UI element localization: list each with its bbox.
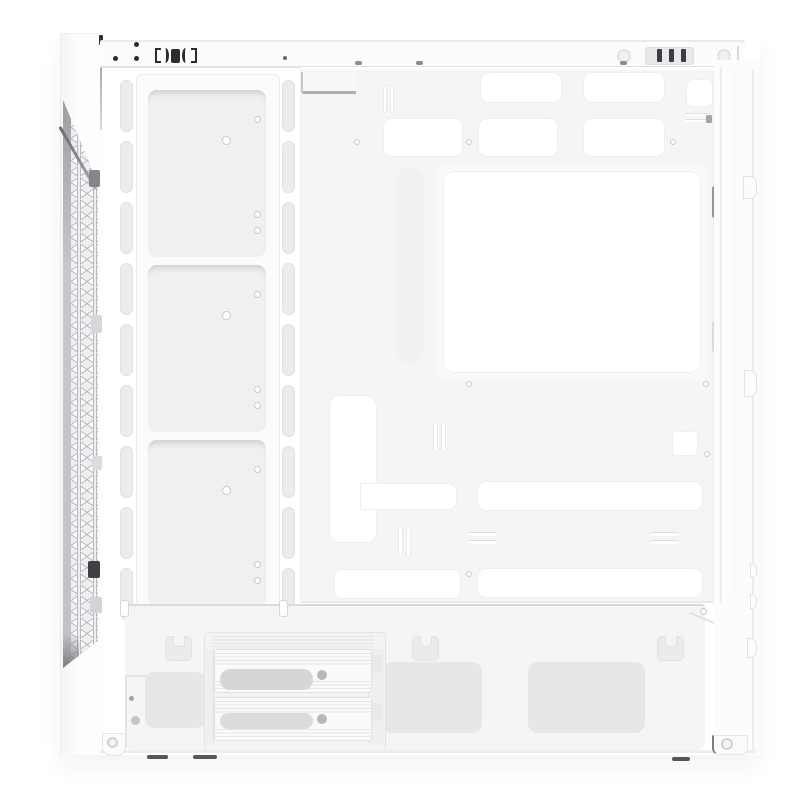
rear-tab <box>743 176 757 199</box>
fan-screw-hole <box>222 311 231 320</box>
radiator-mount-slot <box>282 141 295 193</box>
vertical-cable-cutout <box>329 395 377 543</box>
shroud-screw <box>700 608 707 615</box>
cable-grommet-cutout <box>478 118 558 157</box>
cable-grommet-cutout <box>583 118 665 157</box>
radiator-mount-slot <box>282 385 295 437</box>
front-foot-screw <box>107 737 118 748</box>
tie-down-slot <box>441 422 446 452</box>
io-port-glyph <box>163 48 169 63</box>
radiator-mount-slot <box>120 507 133 559</box>
radiator-mount-slot <box>282 263 295 315</box>
fan-screw-hole <box>254 386 261 393</box>
mesh-clip <box>92 456 102 470</box>
mesh-clip <box>88 561 100 578</box>
tray-slit-mark <box>468 540 497 544</box>
standoff-screw <box>466 139 472 145</box>
rear-tab <box>747 638 757 658</box>
cable-grommet-cutout <box>686 79 713 107</box>
shroud-pin <box>279 600 288 617</box>
mesh-left-edge <box>63 100 71 668</box>
rear-nub <box>750 563 757 578</box>
fan-screw-hole <box>254 402 261 409</box>
radiator-mount-slot <box>282 324 295 376</box>
edge-screw-dash <box>416 61 423 65</box>
pc-case-photo <box>0 0 800 800</box>
case-bottom-line <box>100 750 756 753</box>
fan-screw-hole <box>254 211 261 218</box>
tray-slit-mark <box>650 540 679 544</box>
radiator-mount-slot <box>120 263 133 315</box>
top-screw-dot <box>283 56 287 60</box>
bottom-cable-cutout <box>334 569 461 599</box>
fan-screw-hole <box>254 577 261 584</box>
io-port-glyph <box>155 48 161 63</box>
radiator-mount-slot <box>282 507 295 559</box>
standoff-screw <box>704 451 710 457</box>
tray-step-box <box>301 72 356 94</box>
drive-tray-screw <box>317 714 327 724</box>
horizontal-cable-cutout <box>477 481 703 511</box>
fan-screw-hole <box>254 561 261 568</box>
tray-slit-mark <box>468 532 497 536</box>
tie-down-slot <box>398 527 403 557</box>
io-port-glyph <box>171 49 180 63</box>
mesh-clip <box>89 170 100 187</box>
rear-nub <box>750 594 757 609</box>
drive-tray-recess <box>220 669 313 690</box>
io-port-glyph <box>191 48 197 63</box>
tie-down-slot <box>433 422 438 452</box>
mesh-clip <box>90 597 102 613</box>
radiator-mount-slot <box>120 80 133 132</box>
top-screw-dot <box>113 56 118 61</box>
horizontal-cable-cutout <box>360 483 457 510</box>
mesh-clip <box>91 315 102 333</box>
foot-shadow <box>672 757 690 761</box>
fan-screw-hole <box>254 116 261 123</box>
drive-tray-recess <box>220 713 313 729</box>
vent-grille-bar <box>681 49 686 62</box>
standoff-screw <box>354 139 360 145</box>
rear-vent-tick <box>706 115 712 123</box>
shroud-mesh-vent <box>145 672 206 728</box>
shroud-pin <box>120 600 129 617</box>
standoff-screw <box>670 139 676 145</box>
tie-down-slot <box>406 527 411 557</box>
fan-screw-hole <box>254 466 261 473</box>
fan-screw-hole <box>254 227 261 234</box>
drive-tray-screw <box>317 670 327 680</box>
shroud-screw-dot <box>131 716 140 725</box>
top-screw-dot <box>134 56 139 61</box>
top-screw-dot <box>134 42 139 47</box>
radiator-mount-slot <box>120 385 133 437</box>
io-port-glyph <box>182 48 188 63</box>
cpu-cooler-cutout <box>443 171 701 373</box>
radiator-mount-slot <box>282 446 295 498</box>
tie-down-slot <box>383 85 387 113</box>
shroud-mesh-vent <box>528 662 645 733</box>
rear-tab <box>744 370 757 397</box>
shroud-fan-bracket <box>657 636 684 661</box>
fan-screw-hole <box>222 486 231 495</box>
foot-shadow <box>147 755 168 759</box>
edge-screw-dash <box>355 61 362 65</box>
top-io-ports <box>155 47 199 64</box>
radiator-mount-slot <box>120 141 133 193</box>
shroud-mesh-vent <box>383 662 482 733</box>
tray-slit-mark <box>650 532 679 536</box>
foot-shadow <box>193 755 217 759</box>
tray-channel <box>397 167 423 363</box>
standoff-screw <box>466 381 472 387</box>
radiator-mount-slot <box>282 202 295 254</box>
cage-rim-ribs <box>212 636 374 647</box>
radiator-mount-slot <box>120 324 133 376</box>
cage-left-rail <box>206 649 214 743</box>
shroud-fan-bracket <box>165 636 192 661</box>
shroud-screw-dot <box>129 696 134 701</box>
radiator-mount-slot <box>120 446 133 498</box>
cable-grommet-cutout <box>480 72 562 103</box>
fan-mount-panel <box>148 90 266 257</box>
tie-down-slot <box>390 85 394 113</box>
edge-screw-dash <box>620 61 627 65</box>
cable-grommet-cutout <box>383 118 463 157</box>
standoff-screw <box>466 571 472 577</box>
vent-grille-bar <box>669 49 674 62</box>
fan-screw-hole <box>254 291 261 298</box>
rear-fold-line <box>734 70 735 590</box>
gpu-cable-cutout <box>672 431 698 456</box>
vent-grille-bar <box>657 49 662 62</box>
fan-mount-panel <box>148 440 266 607</box>
bottom-cable-cutout <box>477 568 703 598</box>
fan-mount-panel <box>148 265 266 432</box>
rear-inner-line <box>720 67 722 603</box>
rear-foot-screw <box>721 738 733 750</box>
radiator-mount-slot <box>120 202 133 254</box>
cable-grommet-cutout <box>583 72 665 103</box>
fan-screw-hole <box>222 136 231 145</box>
shroud-fan-bracket <box>412 636 439 661</box>
radiator-mount-slot <box>282 80 295 132</box>
standoff-screw <box>703 381 709 387</box>
